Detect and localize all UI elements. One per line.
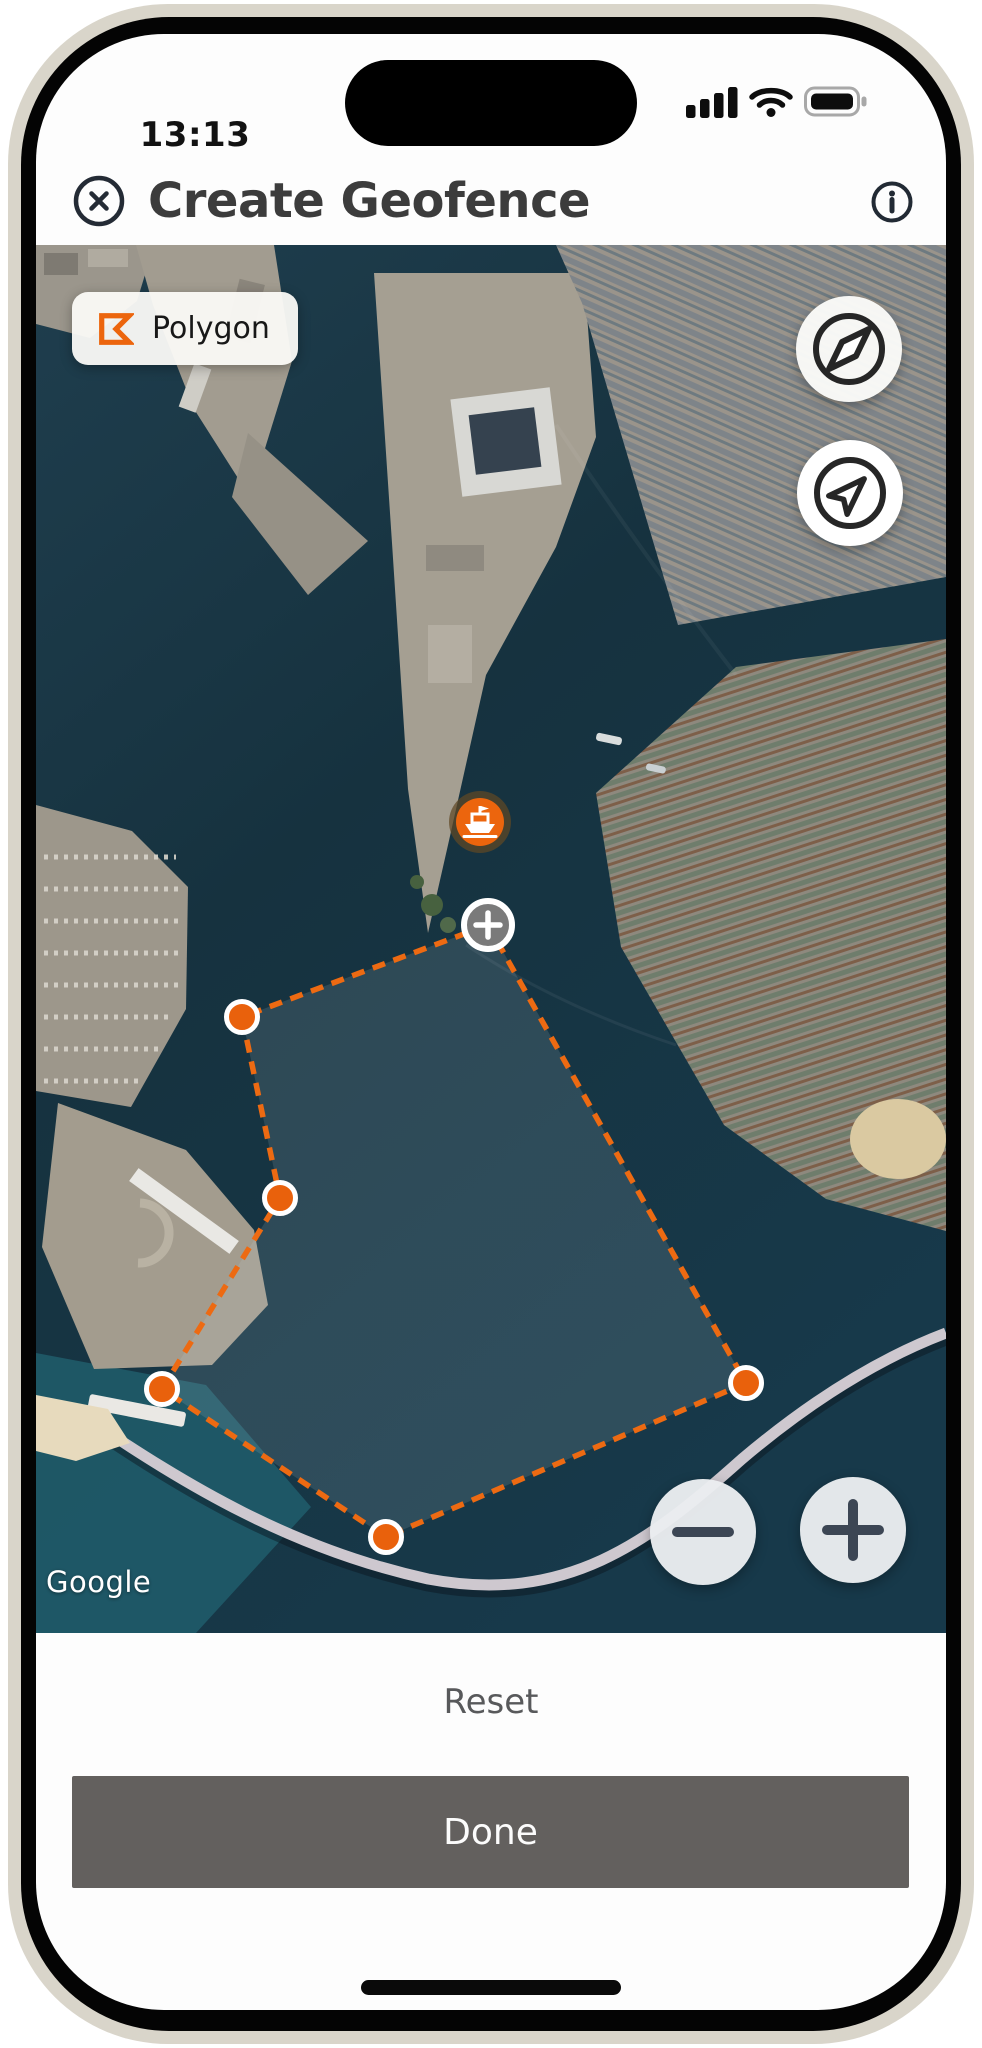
screenshot: 13:13	[0, 0, 982, 2048]
info-circle-icon[interactable]	[870, 180, 914, 224]
reset-button[interactable]: Reset	[36, 1675, 946, 1729]
status-time: 13:13	[130, 115, 260, 155]
wifi-icon	[748, 84, 794, 120]
phone-bezel: 13:13	[21, 17, 961, 2031]
my-location-button[interactable]	[797, 440, 903, 546]
geofence-vertex-5[interactable]	[731, 1368, 762, 1399]
home-indicator[interactable]	[361, 1980, 621, 1995]
map-canvas[interactable]: Polygon	[36, 245, 946, 1633]
zoom-out-button[interactable]	[650, 1479, 756, 1585]
phone-frame: 13:13	[8, 4, 974, 2044]
app-screen: 13:13	[36, 34, 946, 2010]
done-button[interactable]: Done	[72, 1776, 909, 1888]
map-attribution: Google	[46, 1565, 151, 1599]
minus-icon	[650, 1479, 756, 1585]
close-circle-icon[interactable]	[72, 174, 126, 228]
dynamic-island	[345, 60, 637, 146]
add-vertex-marker[interactable]	[464, 901, 512, 949]
geofence-vertex-4[interactable]	[371, 1522, 402, 1553]
vessel-marker[interactable]	[449, 791, 511, 853]
polygon-outline-icon	[96, 310, 134, 348]
battery-icon	[804, 84, 868, 120]
geofence-vertex-2[interactable]	[265, 1183, 296, 1214]
compass-icon	[796, 296, 902, 402]
drawing-mode-label: Polygon	[152, 311, 270, 346]
compass-button[interactable]	[796, 296, 902, 402]
plus-icon	[800, 1477, 906, 1583]
geofence-vertex-3[interactable]	[147, 1374, 178, 1405]
geofence-vertex-1[interactable]	[227, 1002, 258, 1033]
cellular-signal-icon	[686, 84, 740, 120]
zoom-in-button[interactable]	[800, 1477, 906, 1583]
page-title: Create Geofence	[148, 174, 590, 228]
navigation-arrow-icon	[797, 440, 903, 546]
drawing-mode-chip[interactable]: Polygon	[72, 292, 298, 365]
